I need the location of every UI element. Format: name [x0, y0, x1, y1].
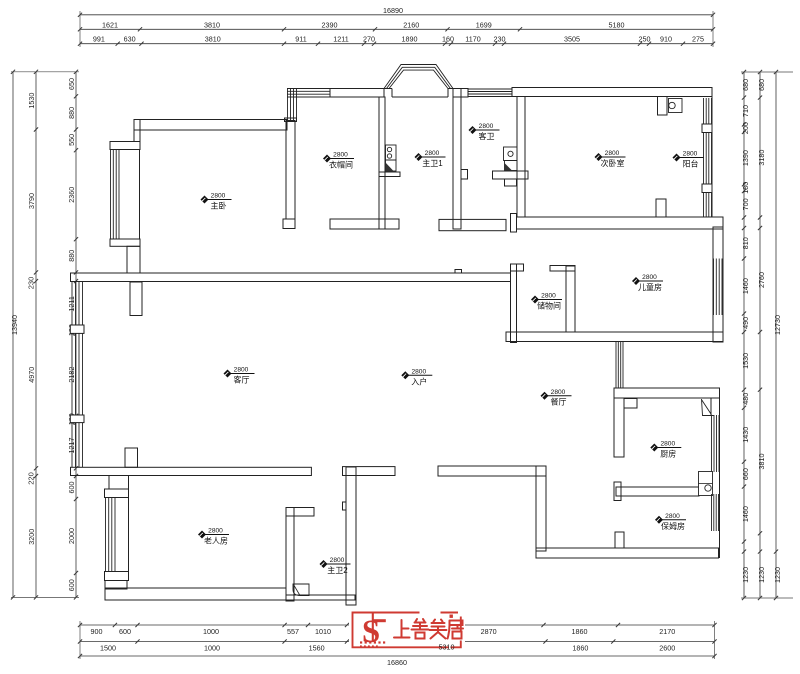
svg-text:1500: 1500: [100, 644, 116, 653]
svg-text:2600: 2600: [659, 644, 675, 653]
svg-text:2800: 2800: [660, 441, 675, 448]
svg-text:700: 700: [741, 198, 750, 210]
svg-text:2170: 2170: [659, 627, 675, 636]
svg-text:老人房: 老人房: [204, 536, 228, 546]
svg-text:2800: 2800: [551, 389, 566, 396]
svg-text:160: 160: [442, 35, 454, 44]
svg-text:次卧室: 次卧室: [601, 158, 625, 168]
svg-text:2800: 2800: [211, 193, 226, 200]
svg-text:16890: 16890: [383, 6, 403, 15]
svg-text:2800: 2800: [330, 557, 345, 564]
svg-text:220: 220: [27, 472, 36, 485]
svg-text:2160: 2160: [403, 20, 419, 29]
svg-text:1211: 1211: [67, 296, 76, 311]
svg-text:3505: 3505: [564, 35, 580, 44]
svg-text:2800: 2800: [683, 151, 698, 158]
svg-text:2800: 2800: [208, 528, 223, 535]
svg-text:680: 680: [757, 79, 766, 91]
svg-text:3810: 3810: [204, 20, 220, 29]
svg-text:180: 180: [741, 182, 750, 194]
svg-text:1230: 1230: [741, 567, 750, 583]
svg-text:880: 880: [67, 107, 76, 119]
svg-text:4970: 4970: [27, 367, 36, 383]
svg-text:1430: 1430: [741, 427, 750, 443]
svg-text:1390: 1390: [741, 150, 750, 166]
svg-text:1217: 1217: [67, 437, 76, 453]
svg-text:550: 550: [67, 134, 76, 146]
svg-text:2800: 2800: [541, 293, 556, 300]
svg-text:2000: 2000: [67, 528, 76, 544]
svg-text:2800: 2800: [411, 369, 426, 376]
svg-text:主卫1: 主卫1: [422, 158, 443, 168]
svg-text:3200: 3200: [27, 529, 36, 545]
svg-text:1230: 1230: [773, 567, 782, 583]
svg-text:阳台: 阳台: [683, 159, 699, 169]
svg-text:3810: 3810: [205, 35, 221, 44]
svg-text:1000: 1000: [203, 627, 219, 636]
svg-text:1560: 1560: [309, 644, 325, 653]
svg-text:2800: 2800: [665, 513, 680, 520]
svg-text:2800: 2800: [234, 367, 249, 374]
svg-text:1621: 1621: [102, 20, 118, 29]
svg-text:880: 880: [67, 250, 76, 262]
svg-text:5310: 5310: [439, 643, 455, 652]
svg-text:12730: 12730: [773, 315, 782, 335]
svg-text:680: 680: [741, 79, 750, 91]
svg-text:900: 900: [91, 627, 103, 636]
svg-text:480: 480: [741, 393, 750, 405]
svg-text:2800: 2800: [605, 150, 620, 157]
svg-text:910: 910: [660, 35, 672, 44]
svg-text:3180: 3180: [757, 150, 766, 166]
svg-text:餐厅: 餐厅: [551, 398, 567, 407]
svg-text:1230: 1230: [757, 567, 766, 583]
svg-text:600: 600: [67, 482, 76, 494]
svg-text:1890: 1890: [402, 35, 418, 44]
svg-text:客卫: 客卫: [479, 131, 495, 141]
svg-text:1170: 1170: [465, 35, 480, 44]
svg-text:1211: 1211: [333, 35, 348, 44]
svg-text:557: 557: [287, 627, 299, 636]
svg-text:230: 230: [27, 277, 36, 290]
svg-text:490: 490: [741, 317, 750, 329]
svg-text:1860: 1860: [572, 644, 588, 653]
svg-text:2760: 2760: [757, 272, 766, 288]
svg-text:1460: 1460: [741, 278, 750, 294]
svg-text:600: 600: [119, 627, 131, 636]
svg-text:2800: 2800: [642, 274, 657, 281]
svg-text:1010: 1010: [315, 627, 331, 636]
svg-text:2360: 2360: [67, 187, 76, 203]
svg-text:2800: 2800: [479, 123, 494, 130]
svg-text:660: 660: [741, 468, 750, 480]
svg-text:2800: 2800: [425, 150, 440, 157]
svg-text:630: 630: [124, 35, 136, 44]
svg-text:2390: 2390: [322, 20, 338, 29]
svg-text:250: 250: [639, 35, 651, 44]
svg-text:客厅: 客厅: [234, 375, 250, 385]
svg-text:13940: 13940: [10, 315, 19, 335]
svg-text:儿童房: 儿童房: [638, 282, 662, 292]
svg-text:2800: 2800: [333, 152, 348, 159]
svg-text:275: 275: [692, 35, 704, 44]
svg-text:3790: 3790: [27, 193, 36, 209]
svg-text:1000: 1000: [204, 644, 220, 653]
svg-text:1699: 1699: [476, 20, 492, 29]
svg-text:600: 600: [67, 579, 76, 591]
svg-text:230: 230: [494, 35, 506, 44]
svg-text:810: 810: [741, 237, 750, 249]
svg-text:保姆房: 保姆房: [661, 521, 685, 531]
svg-text:991: 991: [93, 35, 105, 44]
svg-text:2182: 2182: [67, 367, 76, 383]
svg-text:270: 270: [363, 35, 375, 44]
svg-text:911: 911: [295, 35, 306, 44]
svg-text:主卧: 主卧: [211, 201, 227, 211]
svg-text:710: 710: [741, 105, 750, 117]
svg-text:衣帽间: 衣帽间: [329, 160, 353, 170]
svg-text:储物间: 储物间: [537, 301, 561, 311]
svg-text:3810: 3810: [757, 454, 766, 470]
svg-text:1460: 1460: [741, 506, 750, 522]
svg-text:主卫2: 主卫2: [327, 565, 348, 575]
svg-text:1530: 1530: [27, 93, 36, 109]
svg-text:入户: 入户: [411, 376, 427, 386]
svg-text:650: 650: [67, 78, 76, 90]
svg-text:2870: 2870: [481, 627, 497, 636]
svg-text:1860: 1860: [572, 627, 588, 636]
svg-text:200: 200: [741, 122, 750, 134]
svg-text:1530: 1530: [741, 353, 750, 369]
svg-text:16860: 16860: [387, 658, 407, 667]
svg-text:5180: 5180: [609, 20, 625, 29]
svg-text:厨房: 厨房: [660, 449, 676, 459]
